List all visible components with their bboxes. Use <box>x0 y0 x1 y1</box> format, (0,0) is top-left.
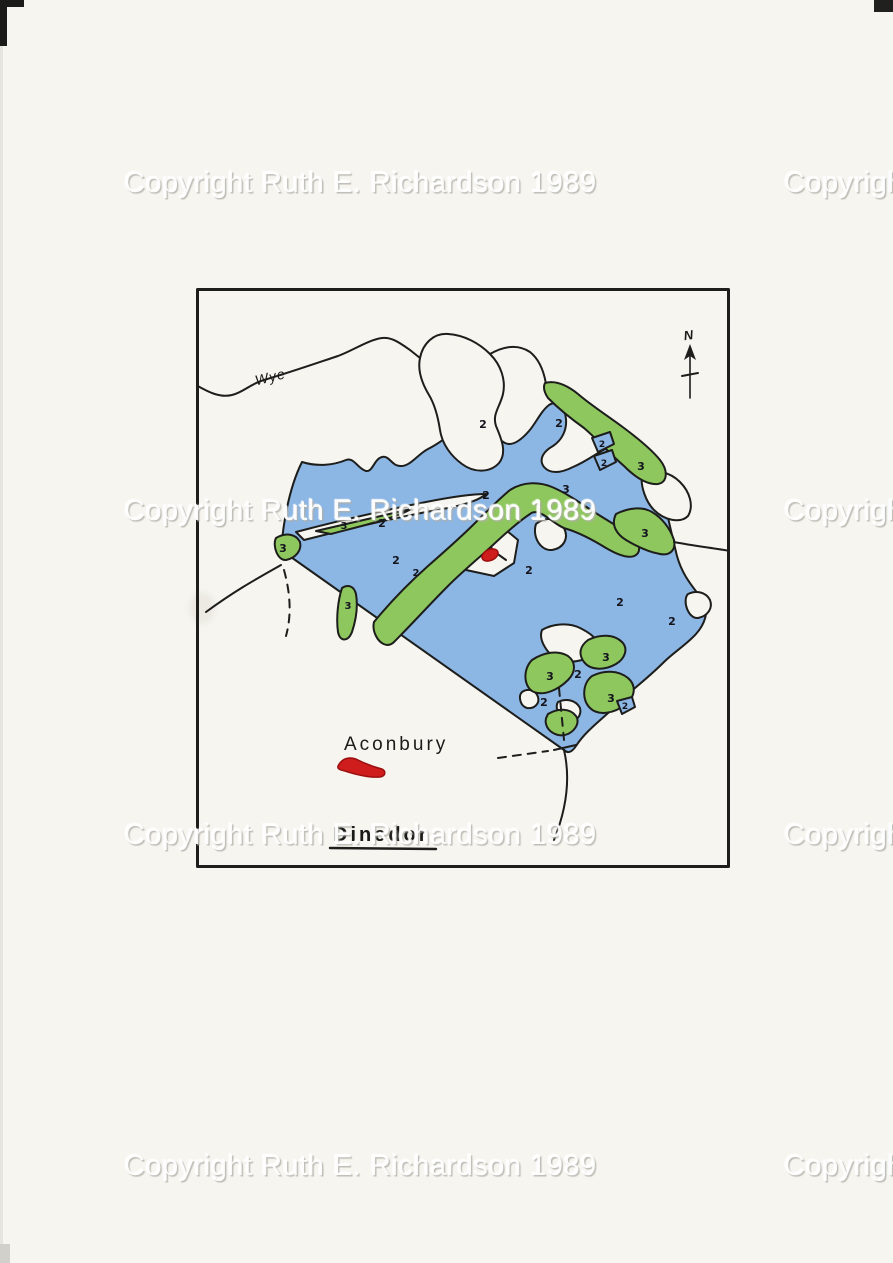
watermark-fragment: Copyright Ruth E. Richardson 1989 <box>784 819 893 852</box>
map-title: Dinedor <box>333 824 430 846</box>
region-number-wood: 3 <box>341 521 348 532</box>
region-number-wood: 3 <box>546 670 554 683</box>
scan-corner-mark <box>0 0 24 7</box>
north-label: N <box>683 327 695 343</box>
region-number-water: 2 <box>668 615 676 628</box>
region-number-water: 2 <box>392 554 400 567</box>
aconbury-site-marker <box>338 758 385 777</box>
region-number-wood: 3 <box>641 527 649 540</box>
region-number-water: 2 <box>482 489 490 502</box>
watermark-fragment: Copyright Ruth E. Richardson 1989 <box>784 495 893 528</box>
region-number-wood: 3 <box>562 483 570 496</box>
aconbury-label: Aconbury <box>344 734 448 755</box>
region-number-water: 2 <box>574 668 582 681</box>
region-number-water: 2 <box>555 417 563 430</box>
watermark-fragment: Copyright Ruth E. Richardson 1989 <box>784 167 893 200</box>
region-number-wood: 3 <box>637 460 645 473</box>
region-number-wood: 3 <box>279 542 287 555</box>
region-number-water: 2 <box>413 568 420 579</box>
region-number-water: 2 <box>601 459 607 469</box>
region-number-water: 2 <box>479 418 487 431</box>
river-wye-label: Wye <box>253 365 287 388</box>
region-number-water: 2 <box>525 564 533 577</box>
hand-drawn-map: N Wye Aconbury Dinedor 22222222222222333… <box>196 288 730 868</box>
watermark-fragment: Copyright Ruth E. Richardson 1989 <box>784 1150 893 1183</box>
region-number-wood: 3 <box>602 651 610 664</box>
region-number-wood: 3 <box>345 601 352 612</box>
scan-corner-mark <box>0 1244 10 1263</box>
scan-edge-artifact <box>0 0 3 1263</box>
region-number-water: 2 <box>540 696 548 709</box>
north-arrow: N <box>682 327 698 398</box>
region-number-water: 2 <box>616 596 624 609</box>
title-underline <box>330 848 436 849</box>
scan-corner-mark <box>874 0 893 12</box>
region-number-water: 2 <box>378 517 386 530</box>
region-number-water: 2 <box>599 440 605 450</box>
watermark: Copyright Ruth E. Richardson 1989 <box>124 1150 597 1183</box>
region-number-wood: 3 <box>607 692 615 705</box>
region-number-water: 2 <box>622 702 628 712</box>
watermark: Copyright Ruth E. Richardson 1989 <box>124 167 597 200</box>
scanned-page: Copyright Ruth E. Richardson 1989 Copyri… <box>0 0 893 1263</box>
